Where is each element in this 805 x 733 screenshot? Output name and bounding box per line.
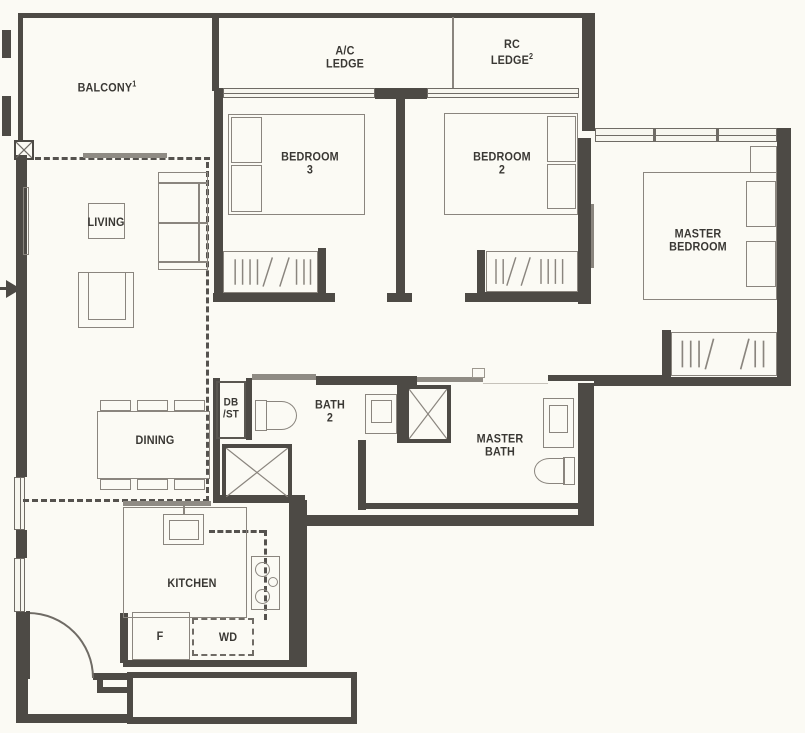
bedroom3-pillow [231,117,262,163]
rc-ledge-superscript: 2 [529,52,533,61]
master-bedside-table [750,146,777,173]
left-wall-window-upper [14,477,25,530]
bath2-label: BATH 2 [315,399,345,424]
balcony-left-wall [18,13,23,141]
balcony-label: BALCONY1 [78,78,137,94]
bath2-sink-basin [371,400,392,423]
bedroom-divider-wall [396,99,405,295]
tv-console [23,187,29,255]
hob-burner [255,562,270,577]
washer-dryer-label: WD [219,631,237,644]
left-edge-column-b [2,96,11,136]
master-west-wall [578,138,591,304]
wing-south-outer-wall [295,515,583,526]
sofa [158,172,208,270]
kitchen-tap [183,505,185,515]
rc-ledge-label: RC LEDGE2 [491,38,533,66]
master-sink-basin [549,405,568,433]
entrance-door-leaf [26,611,30,679]
bedroom3-wardrobe [223,251,318,293]
balcony-superscript: 1 [132,79,136,88]
void-right-wall [351,672,357,724]
master-wardrobe-west-wall [662,330,671,378]
void-bottom-wall [127,717,357,724]
left-edge-column-a [2,30,11,58]
bath2-shower [222,444,292,501]
bedroom3-south-wall [213,293,335,302]
left-wall-mid-block [16,530,27,558]
sofa-line-3 [158,261,208,263]
dining-chair [100,400,131,411]
floor-plan: BALCONY1 A/C LEDGE RC LEDGE2 BEDROOM 3 B… [0,0,805,733]
window-mid-block [375,88,427,99]
master-pillow [746,241,776,287]
bedroom2-pillow [547,164,576,209]
bedroom-divider-foot [387,293,412,302]
left-wall-window-lower [14,558,25,612]
kitchen-south-wall [123,660,307,667]
living-label: LIVING [87,216,124,229]
master-east-wall [777,128,791,386]
armchair-cushion [88,272,126,320]
sofa-back-line [198,182,200,261]
dining-chair [100,479,131,490]
hall-south-wall-east [548,375,670,381]
dbst-label: DB /ST [223,398,239,421]
master-shower [405,385,451,443]
top-wall [18,13,595,18]
balcony-ledge-divider [212,17,219,91]
dining-chair [174,479,205,490]
hob-burner [255,589,270,604]
kitchen-sink-basin [169,520,199,540]
void-left-wall [127,672,133,724]
kitchen-east-wall [289,500,307,666]
kitchen-west-stub [120,613,128,663]
void-top-wall [127,672,357,678]
bedroom2-pillow [547,116,576,162]
dbst-east-wall [246,378,252,440]
master-bedroom-door-leaf [591,204,594,268]
hob-knob [268,577,278,587]
master-pillow [746,181,776,227]
bedroom3-pillow [231,165,262,212]
bedroom3-label: BEDROOM 3 [281,151,339,176]
dining-chair [174,400,205,411]
master-bedroom-label: MASTER BEDROOM [669,228,727,253]
bath2-toilet-bowl [266,401,297,430]
fridge-label: F [157,630,164,643]
ac-rc-ledge-divider [452,17,454,89]
sofa-line-1 [158,182,208,184]
bedroom3-window [223,88,375,98]
ledge-right-wall [582,13,595,131]
dining-label: DINING [136,434,175,447]
mbath-south-inner-wall [358,503,578,509]
entry-arrow-stem [0,287,10,290]
bath2-sliding-door [252,374,316,380]
sofa-line-2 [158,222,208,224]
master-bath-fitting [472,368,485,378]
kitchen-label: KITCHEN [167,577,216,590]
ac-ledge-label: A/C LEDGE [326,45,364,70]
kitchen-sliding-door [123,501,211,506]
dining-chair [137,479,168,490]
master-bedroom-window [595,128,777,142]
entrance-door-swing [28,612,94,678]
ac-unit-box [14,140,34,160]
bedroom2-window [427,88,579,98]
master-wardrobe [671,332,777,376]
bedroom2-south-wall [477,292,590,302]
bedroom2-label: BEDROOM 2 [473,151,531,176]
master-toilet-bowl [534,458,565,484]
bedroom3-west-wall [214,88,223,302]
mbath-west-partition [358,440,366,510]
master-bath-door-threshold [483,383,548,384]
master-bath-label: MASTER BATH [477,433,524,458]
mbath-east-wall [578,383,594,526]
bottom-left-wall [16,714,133,723]
bedroom2-wardrobe [486,251,578,292]
dining-chair [137,400,168,411]
balcony-sliding-door [83,153,167,158]
